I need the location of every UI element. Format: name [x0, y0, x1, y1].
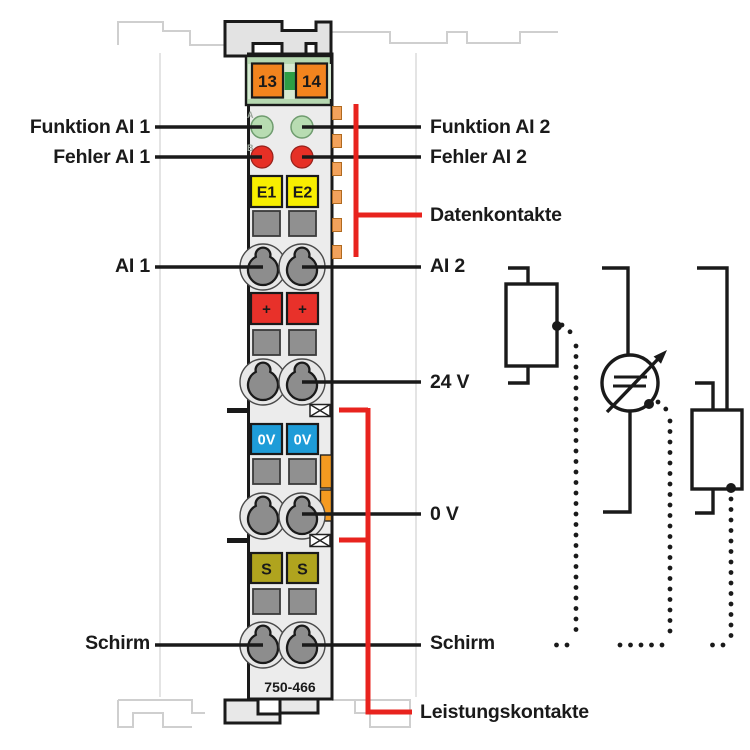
label-datenkontakte: Datenkontakte	[430, 204, 562, 226]
data-contact-tabs	[333, 107, 342, 259]
label-schirm-right: Schirm	[430, 632, 495, 654]
label-0v-right: 0V	[294, 433, 312, 449]
part-number: 750-466	[264, 679, 316, 695]
power-contact-tick-left-upper	[227, 408, 250, 413]
label-funktion-ai1: Funktion AI 1	[30, 116, 151, 138]
led-row-marker-a: A	[247, 110, 254, 120]
push-button	[289, 589, 316, 614]
sensor-2wire-lead-bottom	[508, 366, 528, 383]
sensor-3wire-body	[692, 410, 742, 489]
ghost-top-right	[332, 32, 558, 43]
sensor-mid-lead-bottom	[603, 411, 630, 512]
label-leistungskontakte: Leistungskontakte	[420, 701, 589, 723]
bracket-leistungskontakte	[339, 408, 412, 712]
sensor-3wire-lead-0v	[695, 489, 713, 513]
push-button	[253, 330, 280, 355]
push-button	[253, 459, 280, 484]
sensor-mid-lead-top	[602, 268, 628, 355]
data-contact-tab	[333, 191, 342, 204]
variable-capacitance-sensor-icon	[602, 268, 667, 512]
power-jumper-contact-icon-upper	[310, 405, 330, 417]
shield-dotted-right	[704, 499, 731, 645]
module-bottom-foot-left	[225, 700, 280, 723]
ghost-bottom-left	[118, 700, 205, 727]
push-button	[289, 211, 316, 236]
sensor-3wire-symbol	[692, 268, 742, 513]
power-contact-tick-left-lower	[227, 538, 250, 543]
clamp-0v-right	[279, 493, 325, 539]
label-0v-left: 0V	[258, 433, 276, 449]
power-jumper-contact-icon-lower	[310, 535, 330, 547]
label-plus-right: +	[298, 301, 307, 318]
label-24v: 24 V	[430, 371, 470, 393]
label-plus-left: +	[262, 301, 271, 318]
shield-connection-dot	[644, 399, 654, 409]
data-contact-tab	[333, 135, 342, 148]
module-top-profile	[225, 22, 331, 57]
module-bottom-foot-center	[280, 699, 318, 713]
bus-center-key	[285, 72, 297, 90]
label-0v: 0 V	[430, 503, 459, 525]
sensor-3wire-lead-24v	[695, 383, 713, 410]
data-contact-tab	[333, 163, 342, 176]
terminal-14-label: 14	[302, 72, 321, 91]
diagram-canvas: 13 14 A B E1 E2	[0, 0, 750, 750]
push-button	[289, 330, 316, 355]
label-fehler-ai2: Fehler AI 2	[430, 146, 527, 168]
terminal-13-label: 13	[258, 72, 277, 91]
data-contact-tab	[333, 246, 342, 259]
push-button	[253, 211, 280, 236]
push-button	[289, 459, 316, 484]
annotation-brackets	[339, 104, 422, 712]
sensor-2wire-symbol	[506, 268, 562, 383]
label-e2: E2	[293, 185, 313, 202]
data-contact-tab	[333, 219, 342, 232]
label-ai1: AI 1	[115, 255, 150, 277]
sensor-2wire-body	[506, 284, 557, 366]
ghost-top-left	[118, 22, 225, 45]
label-funktion-ai2: Funktion AI 2	[430, 116, 551, 138]
shield-dotted-middle	[617, 402, 670, 645]
label-ai2: AI 2	[430, 255, 465, 277]
sensor-2wire-lead-top	[508, 268, 528, 284]
label-s-right: S	[297, 562, 308, 579]
wiring-diagram-750-466: 13 14 A B E1 E2	[0, 0, 750, 750]
label-s-left: S	[261, 562, 272, 579]
label-fehler-ai1: Fehler AI 1	[53, 146, 150, 168]
shield-dotted-left	[552, 325, 576, 645]
label-schirm-left: Schirm	[85, 632, 150, 654]
sensor-schematic	[506, 268, 742, 645]
bus-connector-block: 13 14	[246, 56, 331, 105]
data-contact-tab	[333, 107, 342, 120]
label-e1: E1	[257, 185, 277, 202]
shield-connection-dot	[726, 483, 736, 493]
push-button	[253, 589, 280, 614]
